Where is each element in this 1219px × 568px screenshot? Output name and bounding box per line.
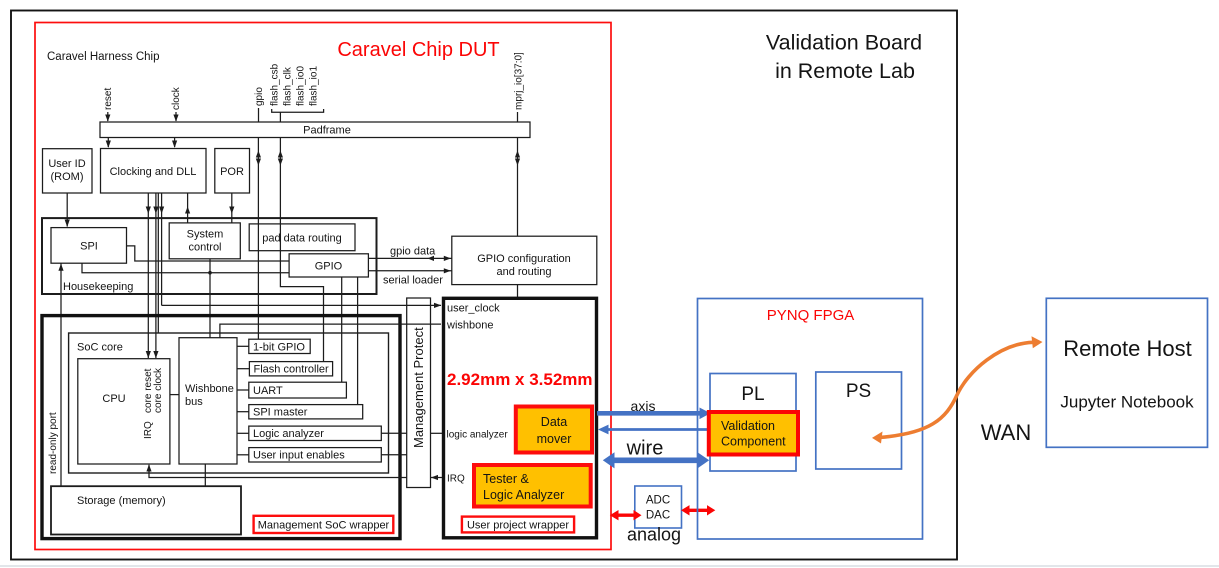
svg-text:Padframe: Padframe bbox=[303, 125, 351, 137]
svg-text:Wishbone: Wishbone bbox=[185, 383, 234, 395]
svg-text:SPI: SPI bbox=[80, 241, 98, 253]
svg-text:pad data routing: pad data routing bbox=[262, 233, 342, 245]
svg-text:User input enables: User input enables bbox=[253, 450, 345, 462]
svg-text:flash_csb: flash_csb bbox=[270, 63, 281, 106]
svg-text:clock: clock bbox=[171, 86, 182, 110]
svg-text:Housekeeping: Housekeeping bbox=[63, 281, 133, 293]
svg-text:DAC: DAC bbox=[646, 510, 670, 522]
svg-text:PL: PL bbox=[741, 384, 764, 405]
svg-text:User project wrapper: User project wrapper bbox=[467, 520, 569, 532]
svg-text:Caravel Harness Chip: Caravel Harness Chip bbox=[47, 51, 160, 63]
svg-text:GPIO: GPIO bbox=[315, 261, 343, 273]
svg-text:Validation Board: Validation Board bbox=[766, 31, 922, 55]
svg-text:(ROM): (ROM) bbox=[51, 171, 84, 183]
svg-text:SoC core: SoC core bbox=[77, 342, 123, 354]
svg-text:serial loader: serial loader bbox=[383, 275, 443, 287]
svg-text:Caravel Chip DUT: Caravel Chip DUT bbox=[337, 39, 499, 61]
svg-text:Storage (memory): Storage (memory) bbox=[77, 495, 166, 507]
svg-text:Management SoC wrapper: Management SoC wrapper bbox=[258, 520, 390, 532]
svg-text:user_clock: user_clock bbox=[447, 303, 500, 315]
svg-text:analog: analog bbox=[627, 525, 681, 545]
svg-text:gpio: gpio bbox=[254, 87, 265, 106]
svg-text:SPI master: SPI master bbox=[253, 407, 308, 419]
svg-text:and routing: and routing bbox=[496, 266, 551, 278]
svg-text:read-only port: read-only port bbox=[48, 412, 59, 474]
svg-text:PS: PS bbox=[846, 381, 871, 402]
svg-text:Component: Component bbox=[721, 435, 786, 449]
svg-text:axis: axis bbox=[631, 398, 656, 414]
svg-text:IRQ: IRQ bbox=[447, 474, 465, 485]
svg-text:PYNQ FPGA: PYNQ FPGA bbox=[767, 307, 855, 324]
svg-text:Remote Host: Remote Host bbox=[1063, 336, 1191, 361]
svg-text:mover: mover bbox=[537, 432, 572, 446]
svg-text:1-bit GPIO: 1-bit GPIO bbox=[253, 341, 305, 353]
svg-text:Tester &: Tester & bbox=[483, 472, 530, 486]
svg-text:logic analyzer: logic analyzer bbox=[447, 430, 509, 441]
svg-text:bus: bus bbox=[185, 396, 203, 408]
svg-text:UART: UART bbox=[253, 385, 283, 397]
svg-text:wire: wire bbox=[626, 438, 664, 460]
svg-text:Jupyter Notebook: Jupyter Notebook bbox=[1060, 393, 1194, 412]
svg-text:wishbone: wishbone bbox=[446, 319, 493, 331]
svg-text:System: System bbox=[187, 229, 224, 241]
svg-text:WAN: WAN bbox=[981, 420, 1032, 445]
svg-text:core clock: core clock bbox=[153, 367, 164, 413]
svg-text:GPIO configuration: GPIO configuration bbox=[477, 253, 571, 265]
svg-text:reset: reset bbox=[103, 88, 114, 110]
svg-text:in Remote Lab: in Remote Lab bbox=[775, 59, 915, 83]
svg-text:mprj_io[37:0]: mprj_io[37:0] bbox=[514, 52, 525, 110]
svg-text:control: control bbox=[188, 242, 221, 254]
svg-text:POR: POR bbox=[220, 166, 244, 178]
svg-text:Management Protect: Management Protect bbox=[411, 327, 426, 448]
svg-text:gpio data: gpio data bbox=[390, 246, 436, 258]
svg-text:2.92mm x 3.52mm: 2.92mm x 3.52mm bbox=[447, 370, 593, 389]
svg-text:Validation: Validation bbox=[721, 419, 775, 433]
svg-text:Logic Analyzer: Logic Analyzer bbox=[483, 488, 564, 502]
svg-text:ADC: ADC bbox=[646, 495, 670, 507]
svg-text:Data: Data bbox=[541, 415, 567, 429]
svg-text:flash_clk: flash_clk bbox=[283, 66, 294, 106]
svg-text:flash_io1: flash_io1 bbox=[309, 66, 320, 106]
svg-text:CPU: CPU bbox=[102, 393, 125, 405]
svg-text:Flash controller: Flash controller bbox=[254, 364, 330, 376]
svg-text:Clocking and DLL: Clocking and DLL bbox=[110, 166, 197, 178]
svg-text:flash_io0: flash_io0 bbox=[296, 66, 307, 106]
svg-text:IRQ: IRQ bbox=[143, 421, 154, 439]
svg-text:Logic analyzer: Logic analyzer bbox=[253, 428, 324, 440]
svg-text:User ID: User ID bbox=[48, 158, 85, 170]
